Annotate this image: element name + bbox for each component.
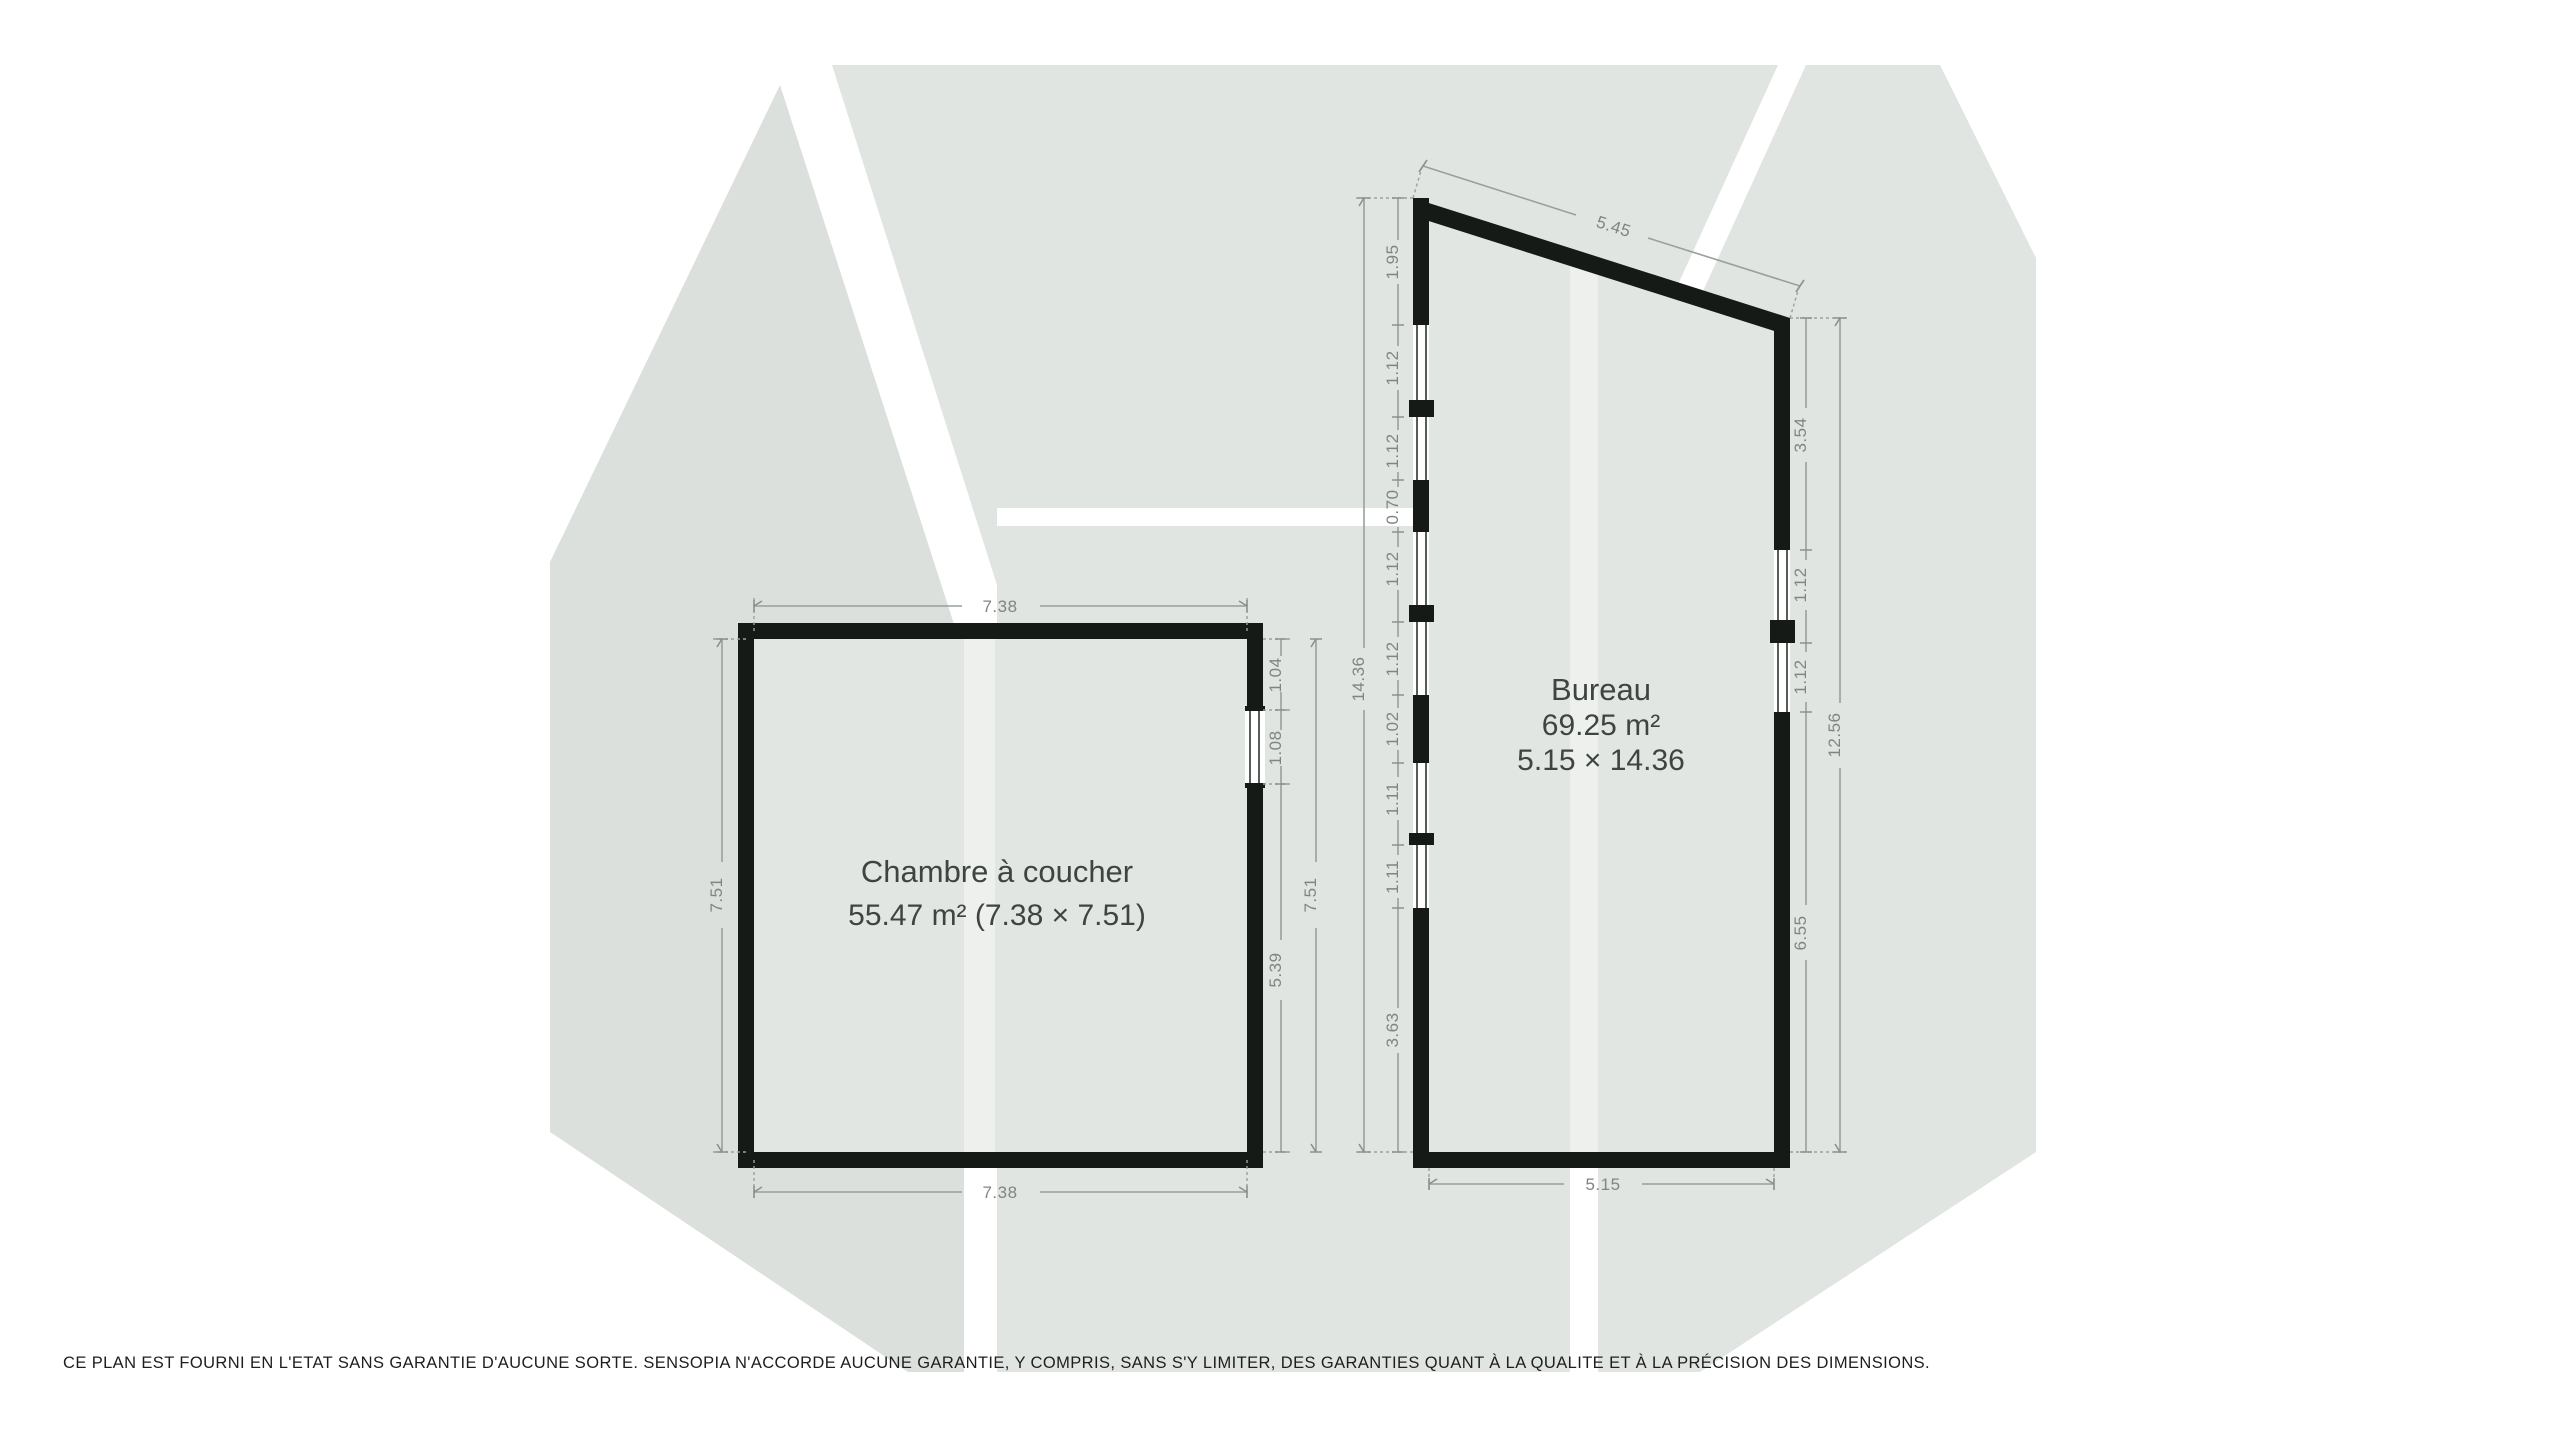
office-dim-left-seg-3: 0.70 bbox=[1383, 489, 1402, 524]
bedroom-dim-bottom: 7.38 bbox=[982, 1183, 1017, 1202]
office-dim-right-seg-0: 3.54 bbox=[1791, 417, 1810, 452]
bedroom-dim-left: 7.51 bbox=[707, 877, 726, 912]
office-dim-right-seg-3: 6.55 bbox=[1791, 915, 1810, 950]
office-right-wall-stub bbox=[1770, 620, 1795, 643]
office-dim-bottom: 5.15 bbox=[1585, 1175, 1620, 1194]
office-floor-stripe bbox=[1570, 262, 1598, 1152]
room-bedroom bbox=[738, 623, 1265, 1168]
office-wall-bottom bbox=[1413, 1152, 1790, 1168]
office-dim-left-seg-9: 3.63 bbox=[1383, 1012, 1402, 1047]
bedroom-dim-right-total: 7.51 bbox=[1301, 877, 1320, 912]
office-left-wall-stub bbox=[1409, 833, 1434, 845]
bedroom-dim-right-seg-1: 1.08 bbox=[1266, 730, 1285, 765]
office-left-wall-stub bbox=[1409, 400, 1434, 417]
office-dim-left-seg-6: 1.02 bbox=[1383, 711, 1402, 746]
office-dim-left-seg-0: 1.95 bbox=[1383, 244, 1402, 279]
bedroom-window bbox=[1245, 706, 1265, 788]
bedroom-floor bbox=[738, 623, 1263, 1168]
office-size: 5.15 × 14.36 bbox=[1517, 744, 1685, 777]
disclaimer-text: CE PLAN EST FOURNI EN L'ETAT SANS GARANT… bbox=[63, 1353, 1930, 1372]
office-dim-right-total: 12.56 bbox=[1825, 712, 1844, 757]
office-area: 69.25 m² bbox=[1542, 709, 1660, 742]
office-name: Bureau bbox=[1551, 672, 1651, 707]
office-dim-left-seg-8: 1.11 bbox=[1383, 860, 1402, 894]
office-dim-right-seg-2: 1.12 bbox=[1791, 659, 1810, 694]
bedroom-dim-right-seg-2: 5.39 bbox=[1266, 952, 1285, 987]
floor-plan-canvas: 7.38 7.38 7.51 1.04 1.08 5.39 7.51 bbox=[0, 0, 2560, 1440]
office-dim-left-seg-4: 1.12 bbox=[1383, 551, 1402, 586]
office-dim-left-seg-7: 1.11 bbox=[1383, 782, 1402, 816]
office-dim-left-seg-5: 1.12 bbox=[1383, 641, 1402, 676]
office-left-wall-stub bbox=[1409, 605, 1434, 622]
office-dim-right-seg-1: 1.12 bbox=[1791, 567, 1810, 602]
office-dim-left-seg-1: 1.12 bbox=[1383, 350, 1402, 385]
bedroom-floor-stripe bbox=[964, 639, 995, 1152]
office-dim-left-seg-2: 1.12 bbox=[1383, 433, 1402, 468]
bedroom-name: Chambre à coucher bbox=[861, 854, 1133, 889]
office-wall-right bbox=[1774, 318, 1790, 1168]
bedroom-wall-left bbox=[738, 623, 754, 1168]
bedroom-wall-top bbox=[738, 623, 1263, 639]
bedroom-wall-bottom bbox=[738, 1152, 1263, 1168]
bedroom-wall-right bbox=[1247, 623, 1263, 1168]
bedroom-area: 55.47 m² (7.38 × 7.51) bbox=[848, 899, 1146, 932]
office-dim-left-total: 14.36 bbox=[1349, 656, 1368, 701]
bedroom-dim-top: 7.38 bbox=[982, 597, 1017, 616]
bedroom-dim-right-seg-0: 1.04 bbox=[1266, 657, 1285, 692]
